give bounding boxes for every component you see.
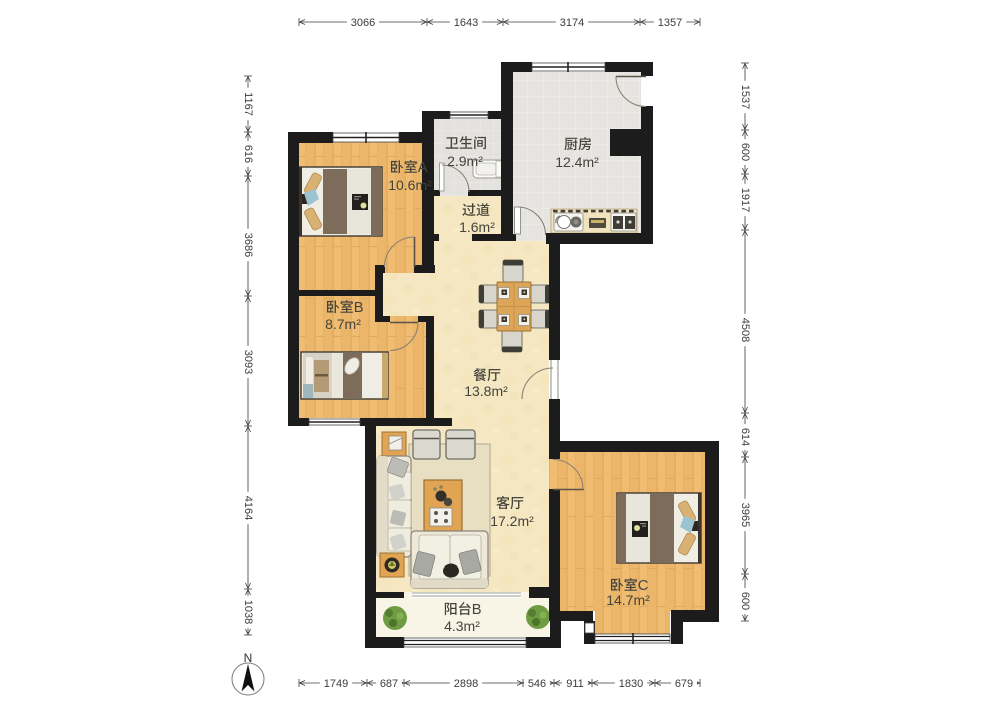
svg-text:1357: 1357	[658, 17, 682, 29]
svg-text:17.2m²: 17.2m²	[490, 513, 534, 529]
svg-text:2898: 2898	[454, 678, 478, 690]
svg-text:1643: 1643	[454, 17, 478, 29]
svg-text:3174: 3174	[560, 17, 584, 29]
svg-text:4164: 4164	[242, 496, 254, 520]
svg-text:4508: 4508	[739, 318, 751, 342]
svg-text:4.3m²: 4.3m²	[444, 618, 480, 634]
svg-text:546: 546	[528, 678, 546, 690]
svg-text:12.4m²: 12.4m²	[555, 154, 599, 170]
svg-text:1917: 1917	[739, 188, 751, 212]
svg-text:10.6m²: 10.6m²	[388, 177, 432, 193]
svg-text:N: N	[244, 651, 253, 665]
svg-text:A: A	[418, 160, 428, 176]
svg-text:1167: 1167	[242, 92, 254, 116]
svg-text:3965: 3965	[739, 503, 751, 527]
svg-text:B: B	[472, 602, 482, 618]
svg-text:600: 600	[739, 592, 751, 610]
svg-text:911: 911	[566, 678, 584, 690]
svg-text:2.9m²: 2.9m²	[447, 153, 483, 169]
svg-text:3093: 3093	[242, 350, 254, 374]
svg-text:3066: 3066	[351, 17, 375, 29]
svg-text:1830: 1830	[619, 678, 643, 690]
svg-text:614: 614	[739, 428, 751, 446]
svg-text:14.7m²: 14.7m²	[606, 592, 650, 608]
svg-text:8.7m²: 8.7m²	[325, 316, 361, 332]
svg-text:13.8m²: 13.8m²	[464, 383, 508, 399]
svg-text:3686: 3686	[242, 233, 254, 257]
svg-text:1749: 1749	[324, 678, 348, 690]
svg-text:616: 616	[242, 145, 254, 163]
svg-text:B: B	[354, 300, 364, 316]
svg-text:1.6m²: 1.6m²	[459, 219, 495, 235]
svg-text:1537: 1537	[739, 85, 751, 109]
svg-text:600: 600	[739, 143, 751, 161]
svg-text:1038: 1038	[242, 600, 254, 624]
svg-text:687: 687	[380, 678, 398, 690]
svg-text:679: 679	[675, 678, 693, 690]
